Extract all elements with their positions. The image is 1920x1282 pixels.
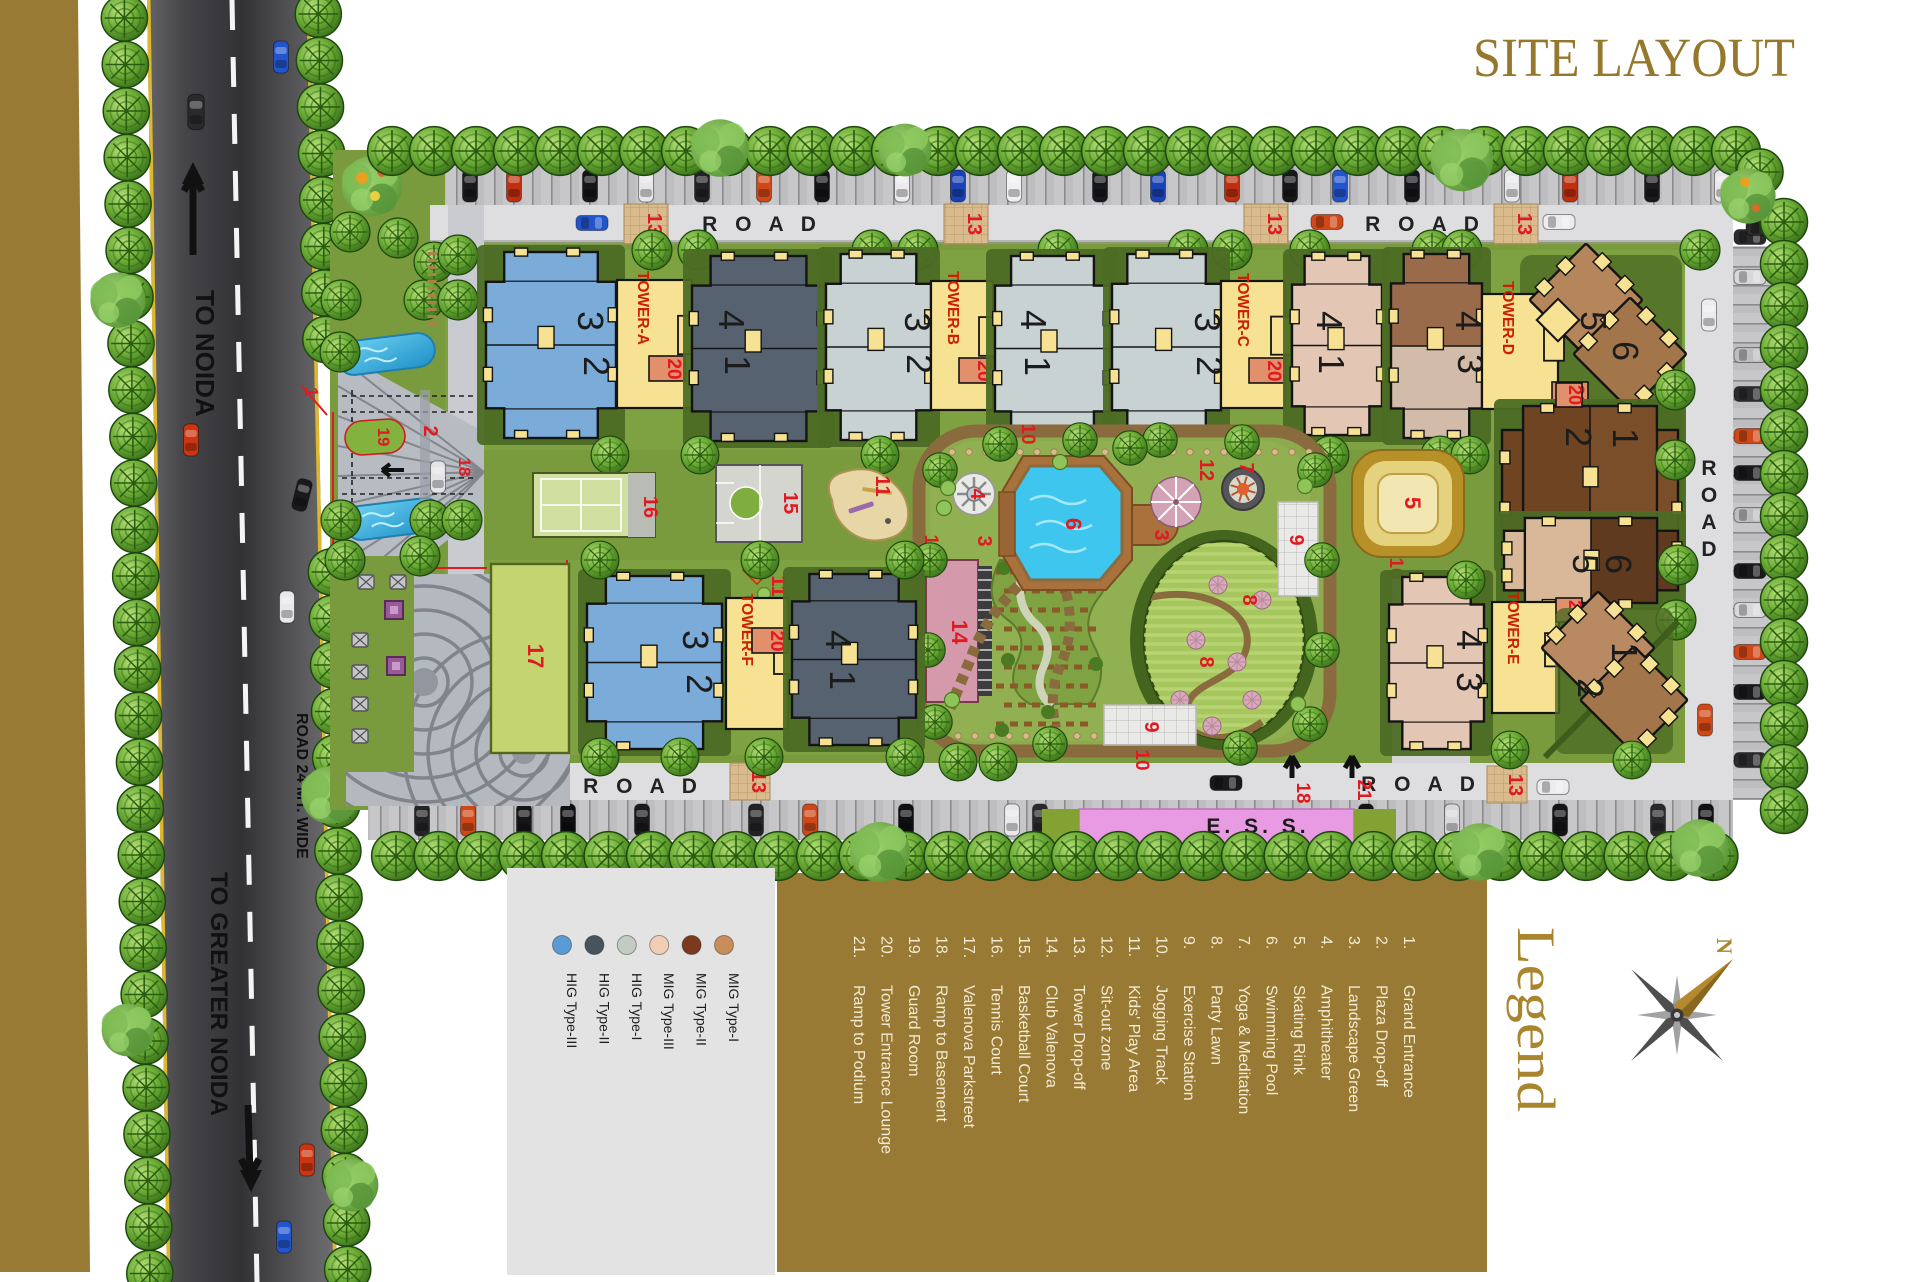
svg-text:Tower Drop-off: Tower Drop-off bbox=[1070, 985, 1087, 1090]
svg-text:1: 1 bbox=[1017, 356, 1058, 376]
svg-text:18: 18 bbox=[1292, 782, 1313, 803]
svg-text:N: N bbox=[1712, 938, 1737, 954]
svg-text:17.: 17. bbox=[960, 936, 977, 958]
svg-text:17: 17 bbox=[523, 644, 548, 668]
svg-text:HIG Type-III: HIG Type-III bbox=[564, 973, 580, 1048]
svg-text:1: 1 bbox=[1604, 642, 1645, 662]
svg-text:11.: 11. bbox=[1125, 936, 1142, 957]
svg-text:6.: 6. bbox=[1263, 936, 1280, 949]
svg-text:8: 8 bbox=[1238, 594, 1260, 605]
svg-text:13: 13 bbox=[1504, 774, 1526, 796]
svg-text:1.: 1. bbox=[1400, 936, 1417, 949]
svg-text:10.: 10. bbox=[1153, 936, 1170, 958]
svg-text:4: 4 bbox=[711, 310, 752, 330]
svg-text:Party Lawn: Party Lawn bbox=[1208, 985, 1225, 1065]
svg-text:10: 10 bbox=[1017, 423, 1038, 444]
svg-text:5.: 5. bbox=[1290, 936, 1307, 949]
svg-text:14: 14 bbox=[947, 620, 972, 645]
svg-text:Skating Rink: Skating Rink bbox=[1290, 985, 1307, 1076]
svg-text:6: 6 bbox=[1061, 518, 1086, 530]
svg-text:2: 2 bbox=[679, 674, 720, 694]
svg-text:20: 20 bbox=[663, 358, 684, 379]
svg-text:Kids' Play Area: Kids' Play Area bbox=[1125, 985, 1142, 1092]
svg-text:15: 15 bbox=[779, 492, 801, 514]
svg-text:Valenova Parkstreet: Valenova Parkstreet bbox=[960, 985, 977, 1128]
svg-text:D: D bbox=[1701, 538, 1716, 561]
svg-text:6: 6 bbox=[1605, 341, 1646, 361]
svg-text:2: 2 bbox=[1558, 427, 1599, 447]
svg-text:Ramp to Podium: Ramp to Podium bbox=[850, 985, 867, 1104]
svg-text:20.: 20. bbox=[878, 936, 895, 958]
svg-text:TO NOIDA: TO NOIDA bbox=[190, 290, 220, 417]
svg-text:Guard Room: Guard Room bbox=[905, 985, 922, 1077]
svg-text:TOWER-B: TOWER-B bbox=[944, 271, 961, 345]
svg-text:5: 5 bbox=[1573, 311, 1614, 331]
svg-text:Landscape Green: Landscape Green bbox=[1345, 985, 1362, 1112]
svg-text:HIG Type-I: HIG Type-I bbox=[629, 973, 645, 1040]
svg-text:TOWER-A: TOWER-A bbox=[634, 271, 651, 345]
svg-text:4: 4 bbox=[1013, 310, 1054, 330]
svg-text:18.: 18. bbox=[933, 936, 950, 958]
svg-text:SITE LAYOUT: SITE LAYOUT bbox=[1473, 27, 1795, 88]
svg-text:Yoga & Meditation: Yoga & Meditation bbox=[1235, 985, 1252, 1114]
svg-text:9: 9 bbox=[1140, 721, 1162, 732]
svg-text:Swimming Pool: Swimming Pool bbox=[1263, 985, 1280, 1095]
svg-text:9: 9 bbox=[1285, 534, 1307, 545]
svg-text:R: R bbox=[1701, 457, 1716, 480]
svg-text:1: 1 bbox=[1311, 354, 1352, 374]
svg-text:3: 3 bbox=[973, 535, 995, 546]
svg-text:Ramp to Basement: Ramp to Basement bbox=[933, 985, 950, 1123]
svg-text:Exercise Station: Exercise Station bbox=[1180, 985, 1197, 1101]
svg-text:18: 18 bbox=[455, 458, 474, 477]
svg-text:13: 13 bbox=[1263, 213, 1285, 235]
svg-text:R O A D: R O A D bbox=[1361, 773, 1481, 796]
svg-text:13: 13 bbox=[1513, 213, 1535, 235]
svg-text:O: O bbox=[1701, 484, 1717, 507]
svg-text:13.: 13. bbox=[1070, 936, 1087, 958]
svg-text:MIG Type-II: MIG Type-II bbox=[694, 973, 710, 1046]
svg-text:TO GREATER NOIDA: TO GREATER NOIDA bbox=[205, 872, 232, 1116]
svg-text:15.: 15. bbox=[1015, 936, 1032, 958]
svg-text:MIG Type-III: MIG Type-III bbox=[661, 973, 677, 1050]
svg-text:16.: 16. bbox=[988, 936, 1005, 958]
svg-text:16: 16 bbox=[639, 496, 661, 518]
svg-text:4.: 4. bbox=[1318, 936, 1335, 949]
svg-text:2: 2 bbox=[1570, 678, 1611, 698]
svg-text:20: 20 bbox=[1565, 385, 1585, 405]
svg-text:R O A D: R O A D bbox=[702, 213, 822, 236]
svg-text:21: 21 bbox=[1353, 779, 1374, 801]
svg-text:7.: 7. bbox=[1235, 936, 1252, 949]
svg-text:12.: 12. bbox=[1098, 936, 1115, 958]
svg-text:5: 5 bbox=[1400, 497, 1425, 509]
svg-text:1: 1 bbox=[1605, 428, 1646, 448]
svg-text:4: 4 bbox=[818, 630, 859, 650]
svg-text:1: 1 bbox=[717, 355, 758, 375]
svg-text:6: 6 bbox=[1598, 554, 1639, 574]
svg-text:8: 8 bbox=[1195, 656, 1217, 667]
svg-text:8.: 8. bbox=[1208, 936, 1225, 949]
svg-text:2: 2 bbox=[576, 356, 617, 376]
svg-text:Legend: Legend bbox=[1506, 927, 1566, 1112]
svg-text:11: 11 bbox=[871, 475, 893, 496]
svg-text:4: 4 bbox=[1309, 311, 1350, 331]
svg-text:R O A D: R O A D bbox=[583, 775, 703, 798]
svg-text:Tower Entrance Lounge: Tower Entrance Lounge bbox=[878, 985, 895, 1154]
svg-text:3: 3 bbox=[570, 311, 611, 331]
svg-text:Basketball Court: Basketball Court bbox=[1015, 985, 1032, 1103]
svg-text:MIG Type-I: MIG Type-I bbox=[726, 973, 742, 1042]
svg-text:Jogging Track: Jogging Track bbox=[1153, 985, 1170, 1086]
svg-text:2.: 2. bbox=[1373, 936, 1390, 949]
svg-text:TOWER-C: TOWER-C bbox=[1234, 273, 1251, 347]
svg-text:3: 3 bbox=[1150, 529, 1172, 540]
svg-text:3.: 3. bbox=[1345, 936, 1362, 949]
svg-text:7: 7 bbox=[1235, 462, 1257, 473]
svg-text:HIG Type-II: HIG Type-II bbox=[596, 973, 612, 1044]
svg-text:4: 4 bbox=[1449, 630, 1490, 650]
svg-text:19.: 19. bbox=[905, 936, 922, 958]
svg-text:21.: 21. bbox=[850, 936, 867, 958]
svg-text:3: 3 bbox=[1449, 672, 1490, 692]
svg-text:19: 19 bbox=[374, 428, 393, 447]
svg-text:Club Valenova: Club Valenova bbox=[1043, 985, 1060, 1088]
svg-text:12: 12 bbox=[1195, 459, 1217, 481]
svg-text:A: A bbox=[1701, 511, 1716, 534]
svg-text:Plaza Drop-off: Plaza Drop-off bbox=[1373, 985, 1390, 1088]
svg-text:3: 3 bbox=[675, 630, 716, 650]
svg-text:Grand Entrance: Grand Entrance bbox=[1400, 985, 1417, 1098]
svg-text:Sit-out zone: Sit-out zone bbox=[1098, 985, 1115, 1070]
svg-text:TOWER-E: TOWER-E bbox=[1504, 592, 1521, 665]
svg-text:14.: 14. bbox=[1043, 936, 1060, 958]
svg-text:4: 4 bbox=[966, 488, 988, 500]
svg-text:13: 13 bbox=[963, 213, 985, 235]
svg-text:TOWER-D: TOWER-D bbox=[1499, 281, 1516, 355]
svg-text:9.: 9. bbox=[1180, 936, 1197, 949]
svg-text:Amphitheater: Amphitheater bbox=[1318, 985, 1335, 1081]
svg-text:10: 10 bbox=[1131, 749, 1152, 770]
svg-text:1: 1 bbox=[822, 670, 863, 690]
svg-text:Tennis Court: Tennis Court bbox=[988, 985, 1005, 1075]
svg-text:2: 2 bbox=[419, 425, 441, 436]
svg-text:20: 20 bbox=[1263, 360, 1284, 381]
